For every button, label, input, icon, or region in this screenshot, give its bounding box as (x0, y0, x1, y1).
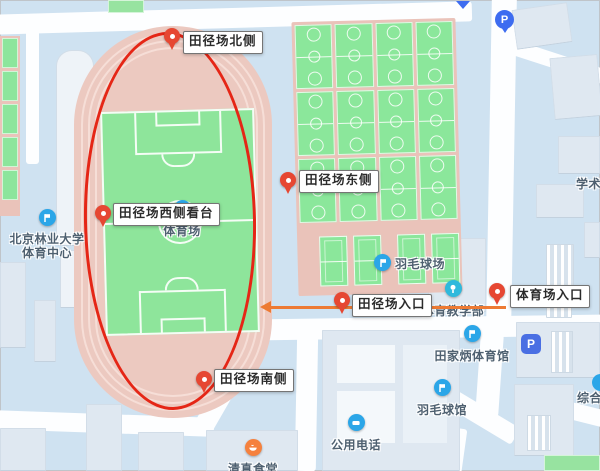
basketball-court (378, 156, 417, 221)
courtyard (337, 345, 395, 383)
marker-label-track-entrance[interactable]: 田径场入口 (352, 294, 432, 317)
food-icon (245, 439, 262, 456)
small-court (2, 170, 18, 200)
marker-pin-track-west-stand[interactable] (95, 205, 111, 221)
small-court (2, 71, 18, 101)
venue-icon (464, 325, 481, 342)
poi-badminton-hall[interactable]: 羽毛球馆 (410, 379, 474, 417)
racket-icon (445, 280, 462, 297)
building (0, 262, 26, 348)
basketball-court (296, 91, 335, 156)
poi-tianjiabing-gym[interactable]: 田家炳体育馆 (426, 325, 518, 363)
map-canvas[interactable]: 北京林业大学 体育中心 体育场 羽毛球场 体育教学部 田家炳体育馆 羽毛球馆 (0, 0, 600, 471)
marker-label-track-north[interactable]: 田径场北侧 (183, 31, 263, 54)
basketball-court (377, 89, 416, 154)
badminton-court (319, 236, 348, 287)
basketball-court (337, 90, 376, 155)
chevron-down-icon (456, 1, 470, 9)
venue-icon (374, 254, 391, 271)
building (549, 54, 600, 120)
road (26, 24, 39, 164)
building (558, 136, 600, 174)
poi-label: 田家炳体育馆 (426, 349, 518, 363)
poi-public-phone[interactable]: 公用电话 (330, 414, 382, 452)
poi-label: 羽毛球馆 (410, 403, 474, 417)
small-court (2, 104, 18, 134)
building (584, 222, 600, 258)
basketball-court (417, 88, 456, 153)
poi-badminton-courts[interactable]: 羽毛球场 (374, 254, 445, 271)
building (86, 404, 122, 471)
area-label-complex: 综合 (577, 391, 600, 405)
building (0, 428, 46, 471)
basketball-grid (291, 18, 460, 226)
marker-label-track-west-stand[interactable]: 田径场西侧看台 (113, 203, 220, 226)
building (511, 2, 572, 49)
parking-lot (546, 244, 574, 288)
parking-lot (527, 415, 551, 451)
side-courts (0, 36, 20, 216)
poi-icon-cut (592, 374, 600, 391)
building (34, 300, 56, 362)
marker-pin-stadium-entrance[interactable] (489, 283, 505, 299)
basketball-court (335, 23, 374, 88)
parking-pin-label: P (501, 14, 508, 26)
building (138, 432, 184, 471)
parking-lot-label: P (527, 337, 535, 351)
phone-icon (348, 414, 365, 431)
parking-pin[interactable]: P (495, 10, 514, 29)
basketball-court (295, 24, 334, 89)
lawn (108, 0, 144, 13)
poi-label: 体育中心 (0, 246, 99, 260)
marker-pin-track-east[interactable] (280, 172, 296, 188)
marker-pin-track-entrance[interactable] (334, 292, 350, 308)
area-label-academic: 学术 (576, 177, 600, 191)
poi-label: 公用电话 (330, 438, 382, 452)
poi-label: 羽毛球场 (395, 257, 445, 271)
poi-label: 清真食堂 (225, 462, 281, 471)
marker-label-track-south[interactable]: 田径场南侧 (214, 369, 294, 392)
basketball-court (415, 21, 454, 86)
parking-lot-icon[interactable]: P (521, 334, 541, 354)
venue-icon (434, 379, 451, 396)
marker-pin-track-south[interactable] (196, 371, 212, 387)
parking-lot (551, 331, 573, 373)
marker-label-track-east[interactable]: 田径场东侧 (299, 170, 379, 193)
basketball-court (419, 155, 458, 220)
building (514, 384, 574, 456)
marker-pin-track-north[interactable] (164, 28, 180, 44)
lawn (544, 455, 600, 471)
route-arrow-head-icon (260, 301, 271, 313)
venue-icon (39, 209, 56, 226)
marker-label-stadium-entrance[interactable]: 体育场入口 (510, 285, 590, 308)
small-court (2, 137, 18, 167)
small-court (2, 38, 18, 68)
poi-halal-canteen[interactable]: 清真食堂 (225, 439, 281, 471)
road (295, 330, 318, 471)
basketball-court (375, 22, 414, 87)
